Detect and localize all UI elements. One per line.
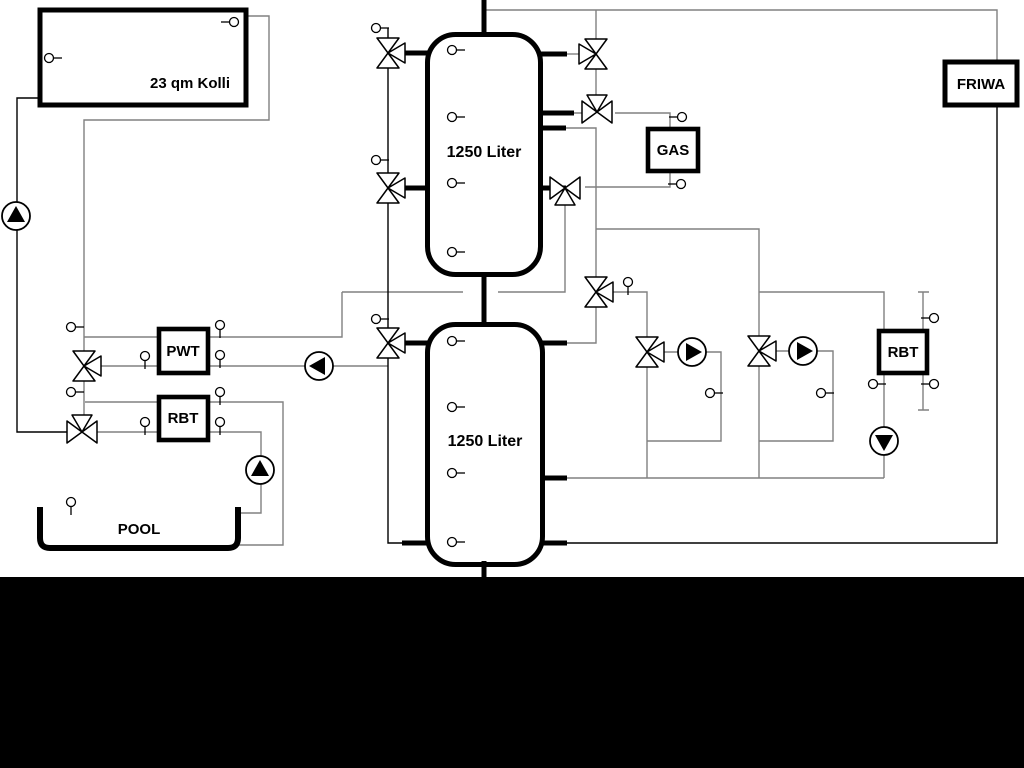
pipe-gas-return [585, 173, 670, 187]
temperature-sensor-icon [67, 323, 85, 332]
three-way-valve-icon [377, 173, 405, 203]
pipe-tank-left-column [388, 28, 403, 543]
collector-label: 23 qm Kolli [150, 75, 230, 92]
tank-bottom-label: 1250 Liter [448, 433, 523, 450]
schematic-canvas: 23 qm Kolli 1250 Liter 1250 Liter PWT RB… [0, 0, 1024, 768]
three-way-valve-icon [582, 95, 612, 123]
rbt-right-label: RBT [888, 344, 919, 361]
three-way-valve-icon [550, 177, 580, 205]
temperature-sensor-icon [817, 389, 835, 398]
solar-pump-icon [2, 202, 30, 230]
circuit-pump-2-icon [789, 337, 817, 365]
temperature-sensor-icon [372, 156, 390, 165]
temperature-sensor-icon [372, 24, 390, 33]
three-way-valve-icon [585, 277, 613, 307]
hydraulic-schematic: 23 qm Kolli 1250 Liter 1250 Liter PWT RB… [0, 0, 1024, 768]
pipe-solar-return [17, 98, 70, 432]
rbt-left-label: RBT [168, 410, 199, 427]
three-way-valve-icon [579, 39, 607, 69]
pipe-rbt-pool-flow [82, 432, 261, 513]
rbt-right-pump-icon [870, 427, 898, 455]
temperature-sensor-icon [372, 315, 390, 324]
components [40, 10, 1017, 565]
three-way-valve-icon [748, 336, 776, 366]
pwt-label: PWT [166, 343, 199, 360]
temperature-sensor-icon [216, 321, 225, 339]
three-way-valve-icon [67, 415, 97, 443]
bottom-black-bar [0, 577, 1024, 768]
friwa-label: FRIWA [957, 76, 1005, 93]
pipe-branch-right [596, 229, 759, 351]
three-way-valve-icon [377, 38, 405, 68]
pool-pump-icon [246, 456, 274, 484]
gas-label: GAS [657, 142, 690, 159]
pipe-branch-rbt-right [759, 292, 884, 331]
tank-top-label: 1250 Liter [447, 144, 522, 161]
pipe-centervalve-out [596, 292, 647, 352]
three-way-valve-icon [73, 351, 101, 381]
pipe-center-column [566, 128, 596, 343]
pipe-gas-flow [615, 113, 670, 127]
circuit-pump-1-icon [678, 338, 706, 366]
pool-label: POOL [118, 521, 161, 538]
temperature-sensor-icon [669, 113, 687, 122]
three-way-valve-icon [636, 337, 664, 367]
pwt-pump-icon [305, 352, 333, 380]
pipe-pwt-top [84, 292, 342, 337]
temperature-sensor-icon [67, 498, 76, 516]
three-way-valve-icon [377, 328, 405, 358]
temperature-sensor-icon [67, 388, 85, 397]
